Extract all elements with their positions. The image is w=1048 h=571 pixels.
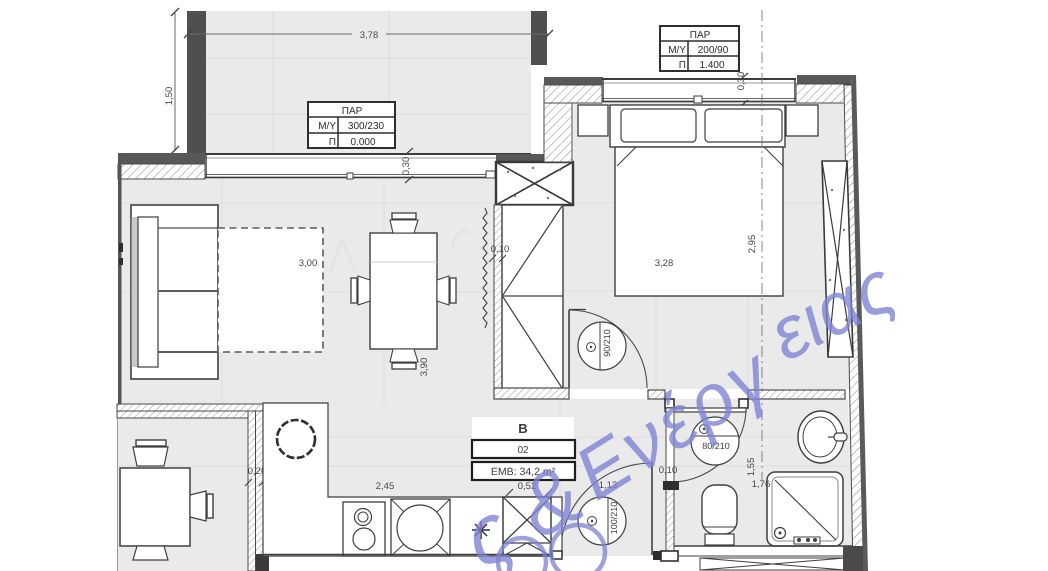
svg-text:Π: Π — [329, 137, 336, 148]
svg-text:Μ/Υ: Μ/Υ — [668, 45, 686, 56]
svg-text:300/230: 300/230 — [348, 121, 385, 132]
svg-text:0,30: 0,30 — [401, 157, 412, 176]
svg-text:2,45: 2,45 — [376, 481, 395, 492]
svg-text:3,90: 3,90 — [419, 358, 430, 377]
svg-text:0,10: 0,10 — [491, 244, 510, 255]
svg-text:3,28: 3,28 — [655, 258, 674, 269]
svg-text:0.000: 0.000 — [350, 137, 375, 148]
svg-text:02: 02 — [517, 445, 529, 456]
svg-text:1,55: 1,55 — [746, 458, 757, 477]
svg-text:1,76: 1,76 — [752, 479, 771, 490]
svg-text:ΠΑΡ: ΠΑΡ — [342, 106, 363, 117]
svg-text:Μ/Υ: Μ/Υ — [318, 121, 336, 132]
svg-text:B: B — [518, 421, 527, 436]
svg-text:90/210: 90/210 — [602, 329, 612, 357]
svg-text:Π: Π — [679, 60, 686, 71]
svg-text:3,00: 3,00 — [299, 258, 318, 269]
svg-text:1.400: 1.400 — [699, 60, 724, 71]
svg-text:2,95: 2,95 — [747, 235, 758, 254]
svg-text:ΠΑΡ: ΠΑΡ — [690, 30, 711, 41]
svg-text:3,78: 3,78 — [360, 30, 379, 41]
svg-text:200/90: 200/90 — [698, 45, 729, 56]
svg-text:1,50: 1,50 — [164, 87, 175, 106]
